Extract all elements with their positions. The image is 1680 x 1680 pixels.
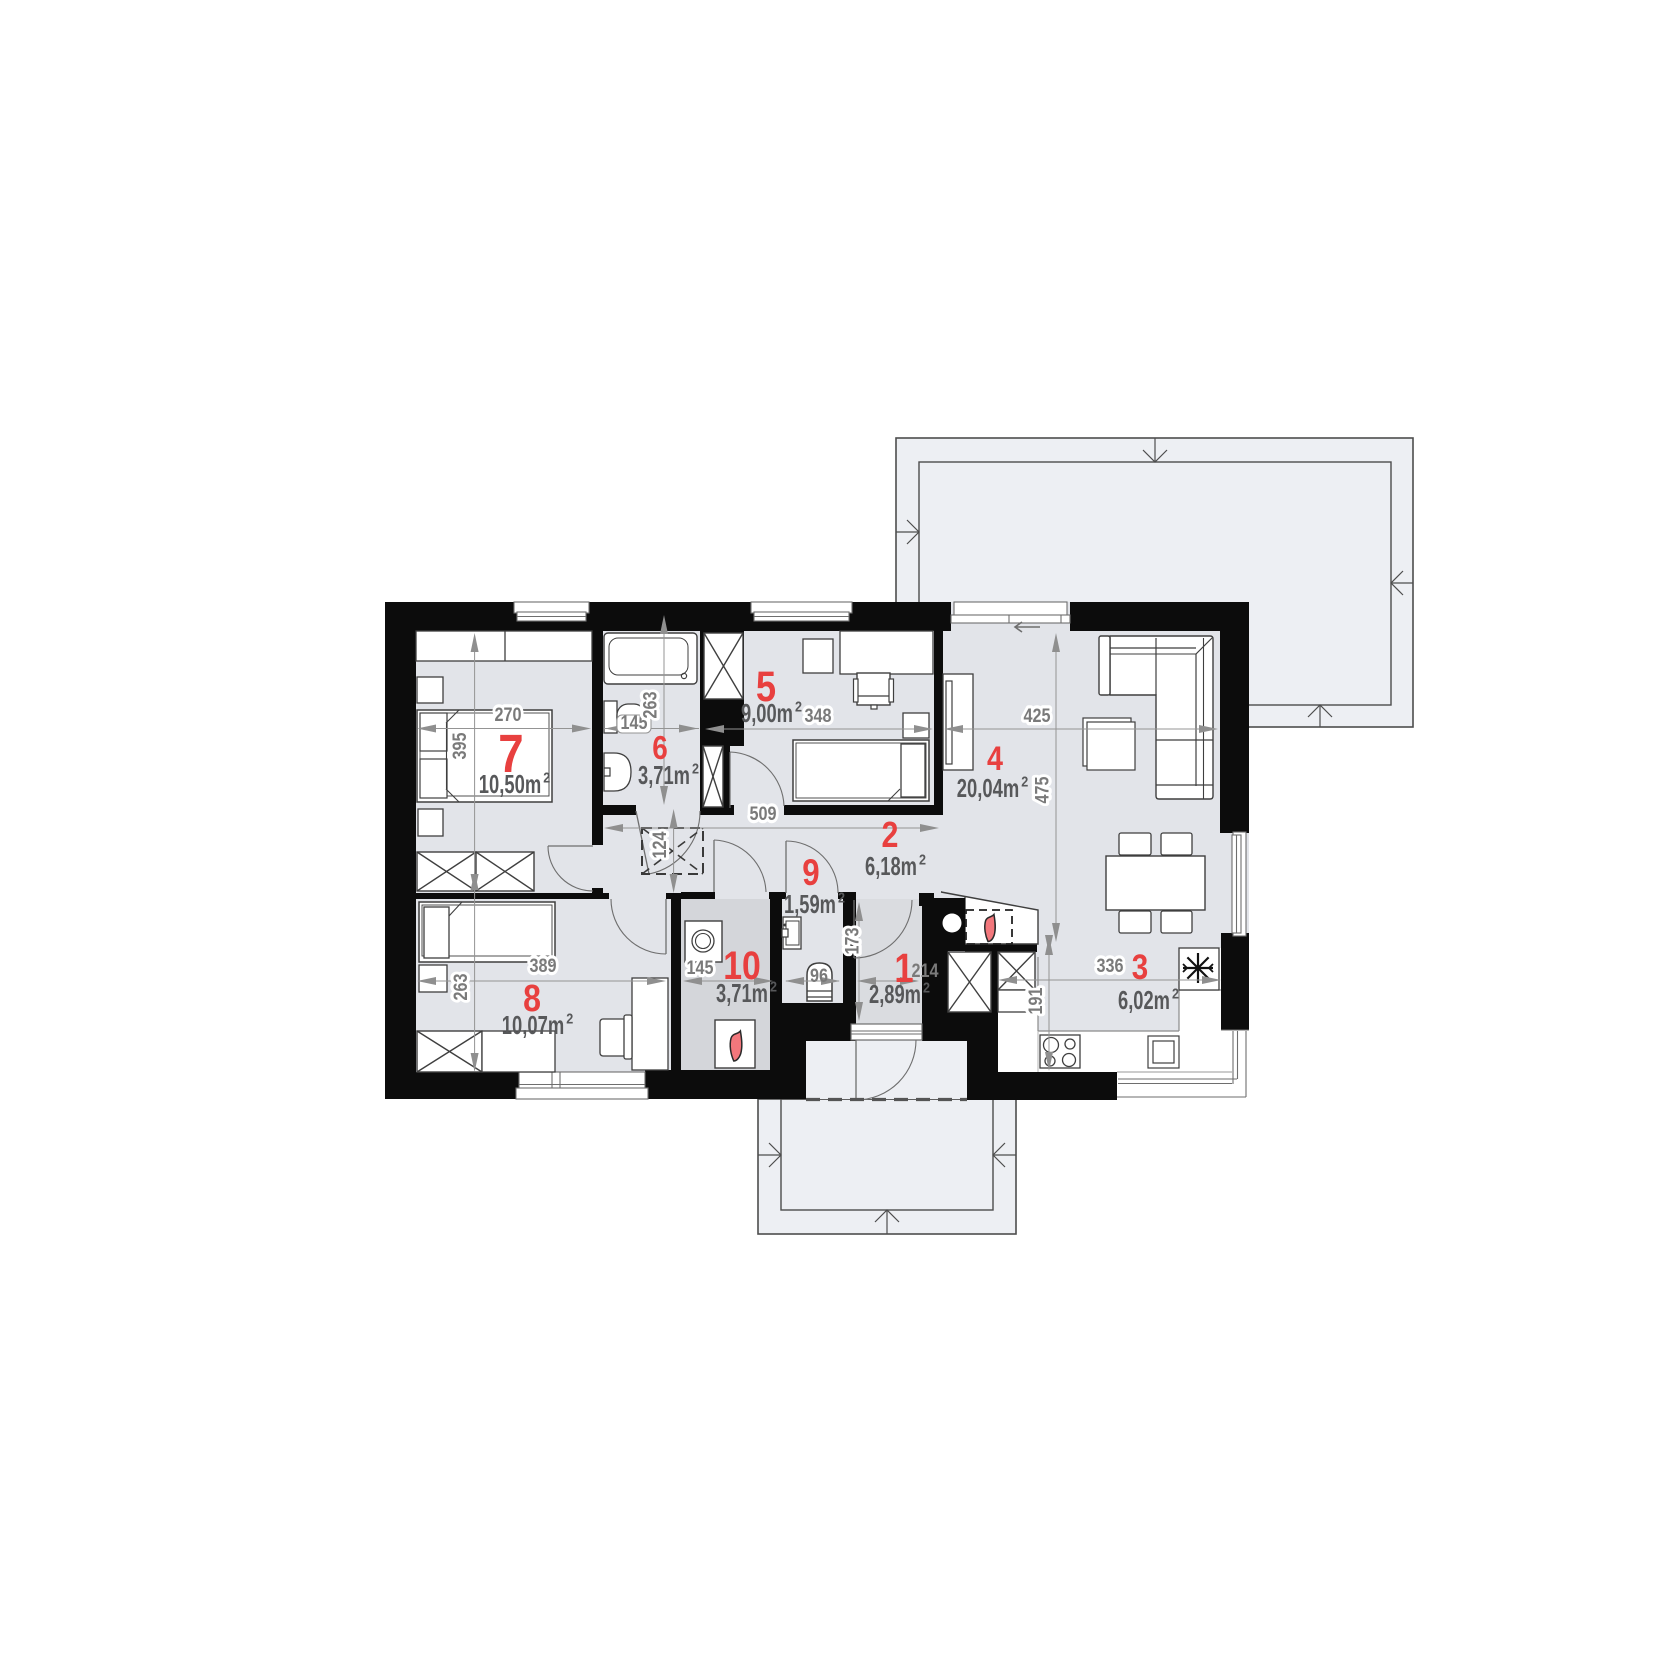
svg-text:2: 2 bbox=[770, 980, 777, 996]
svg-text:10,07m: 10,07m bbox=[502, 1010, 564, 1040]
svg-text:2: 2 bbox=[882, 814, 899, 855]
svg-text:9: 9 bbox=[802, 852, 819, 893]
svg-text:2,89m: 2,89m bbox=[869, 979, 921, 1009]
svg-text:96: 96 bbox=[810, 966, 828, 987]
svg-text:2: 2 bbox=[543, 771, 550, 787]
svg-text:348: 348 bbox=[805, 706, 832, 727]
svg-text:145: 145 bbox=[687, 958, 714, 979]
svg-text:2: 2 bbox=[795, 700, 802, 716]
svg-text:2: 2 bbox=[919, 853, 926, 869]
svg-text:270: 270 bbox=[495, 705, 522, 726]
svg-text:9,00m: 9,00m bbox=[741, 698, 793, 728]
svg-text:3,71m: 3,71m bbox=[716, 978, 768, 1008]
svg-text:3,71m: 3,71m bbox=[638, 760, 690, 790]
svg-text:124: 124 bbox=[650, 831, 671, 858]
svg-text:425: 425 bbox=[1024, 706, 1051, 727]
svg-text:263: 263 bbox=[451, 974, 472, 1001]
svg-text:3: 3 bbox=[1132, 948, 1148, 987]
svg-text:2: 2 bbox=[923, 981, 930, 997]
svg-text:173: 173 bbox=[843, 928, 864, 955]
svg-text:2: 2 bbox=[838, 891, 845, 907]
svg-text:389: 389 bbox=[530, 956, 557, 977]
svg-text:2: 2 bbox=[1172, 987, 1179, 1003]
svg-text:475: 475 bbox=[1033, 776, 1054, 803]
svg-text:2: 2 bbox=[1021, 775, 1028, 791]
svg-text:395: 395 bbox=[450, 732, 471, 759]
svg-text:263: 263 bbox=[641, 692, 662, 719]
svg-text:1,59m: 1,59m bbox=[784, 889, 836, 919]
svg-text:214: 214 bbox=[912, 961, 939, 982]
svg-text:20,04m: 20,04m bbox=[957, 773, 1019, 803]
svg-text:509: 509 bbox=[750, 804, 777, 825]
svg-text:6,18m: 6,18m bbox=[865, 851, 917, 881]
svg-text:10,50m: 10,50m bbox=[479, 769, 541, 799]
svg-text:2: 2 bbox=[692, 762, 699, 778]
svg-text:6,02m: 6,02m bbox=[1118, 985, 1170, 1015]
svg-text:191: 191 bbox=[1026, 987, 1047, 1014]
svg-text:2: 2 bbox=[566, 1012, 573, 1028]
svg-text:336: 336 bbox=[1097, 956, 1124, 977]
